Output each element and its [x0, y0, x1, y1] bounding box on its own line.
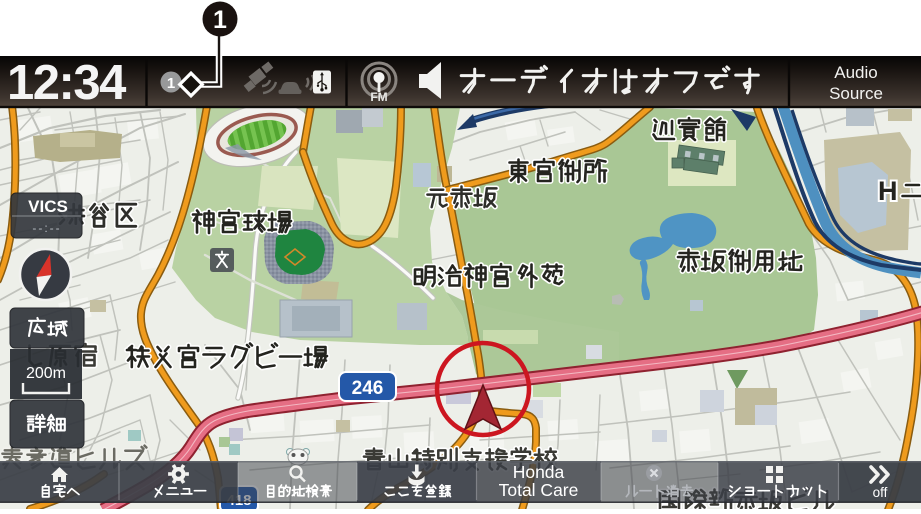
svg-text:Source: Source [829, 84, 883, 103]
svg-text:1: 1 [213, 6, 227, 34]
svg-text:1: 1 [167, 75, 175, 92]
svg-text:12:34: 12:34 [7, 56, 126, 110]
svg-text:off: off [873, 485, 888, 500]
svg-text:Audio: Audio [834, 63, 877, 82]
svg-text:H: H [878, 176, 898, 206]
svg-text:VICS: VICS [28, 197, 68, 216]
svg-text:200m: 200m [26, 365, 66, 382]
svg-text:Total Care: Total Care [499, 480, 579, 500]
svg-text:FM: FM [370, 90, 387, 104]
svg-text:--:--: --:-- [32, 221, 61, 235]
svg-text:246: 246 [352, 378, 384, 399]
svg-text:Honda: Honda [513, 462, 565, 482]
